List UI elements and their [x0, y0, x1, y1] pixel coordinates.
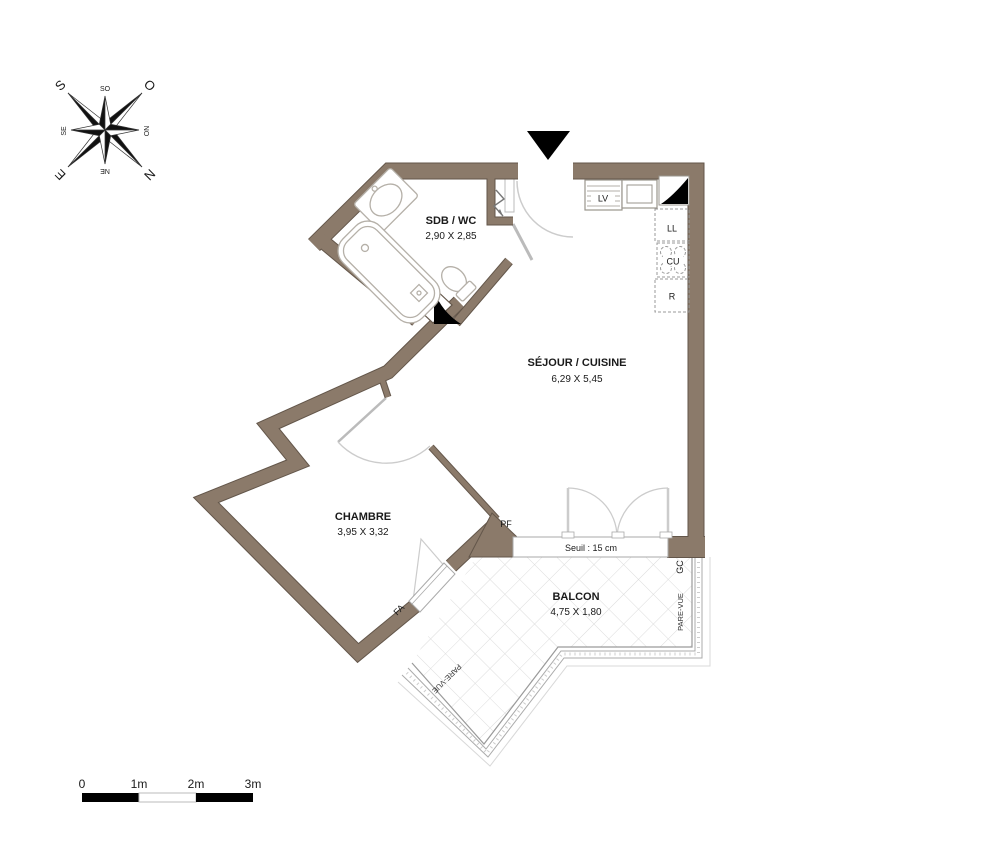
compass-rose: S O N E SO NO NE SE — [52, 76, 159, 183]
compass-south: S — [52, 77, 69, 94]
living-dims: 6,29 X 5,45 — [551, 374, 603, 385]
compass-north: N — [141, 166, 158, 183]
scale-segment-3 — [196, 793, 253, 802]
bathroom-door-leaf — [513, 224, 532, 260]
compass-northeast: NE — [100, 167, 110, 174]
bedroom-dims: 3,95 X 3,32 — [337, 527, 389, 538]
compass-southwest: SO — [100, 86, 111, 93]
bedroom-door-leaf — [338, 398, 386, 442]
bedroom-door-arc — [338, 442, 430, 463]
compass-west: O — [141, 76, 159, 94]
dishwasher-label: LV — [598, 193, 608, 203]
closet-door-leaf — [505, 176, 514, 212]
bathroom-dims: 2,90 X 2,85 — [425, 231, 477, 242]
threshold: Seuil : 15 cm — [513, 532, 672, 557]
french-door-right-arc — [617, 488, 668, 537]
scale-1m: 1m — [131, 777, 148, 791]
threshold-label: Seuil : 15 cm — [565, 543, 617, 553]
balcony-dims: 4,75 X 1,80 — [550, 607, 602, 618]
cooktop-label: CU — [667, 256, 680, 266]
french-door-left-arc — [568, 488, 617, 537]
railing-pare-vue-right-label: PARE-VUE — [676, 593, 685, 631]
washing-machine-label: LL — [667, 223, 677, 233]
entrance-door-arc — [517, 181, 573, 237]
scale-bar: 0 1m 2m 3m — [79, 777, 262, 802]
entrance-arrow — [527, 131, 570, 160]
french-door-label: PF — [500, 519, 512, 529]
refrigerator-label: R — [669, 291, 676, 301]
living-name: SÉJOUR / CUISINE — [527, 356, 626, 369]
balcony — [398, 522, 710, 766]
scale-segment-1 — [82, 793, 139, 802]
compass-east: E — [52, 166, 69, 183]
bathroom-name: SDB / WC — [426, 215, 477, 227]
bedroom-name: CHAMBRE — [335, 511, 391, 523]
compass-star — [68, 93, 142, 167]
wall-bedroom-partition — [431, 447, 497, 519]
scale-3m: 3m — [245, 777, 262, 791]
compass-southeast: SE — [61, 126, 68, 136]
scale-0: 0 — [79, 777, 86, 791]
balcony-name: BALCON — [552, 591, 599, 603]
railing-gc-label: GC — [675, 560, 685, 574]
floor-plan-svg: Seuil : 15 cm LV LL CU R — [0, 0, 1000, 857]
compass-northwest: NO — [142, 126, 149, 137]
scale-2m: 2m — [188, 777, 205, 791]
scale-segment-2 — [139, 793, 196, 802]
floor-plan-page: Seuil : 15 cm LV LL CU R — [0, 0, 1000, 857]
